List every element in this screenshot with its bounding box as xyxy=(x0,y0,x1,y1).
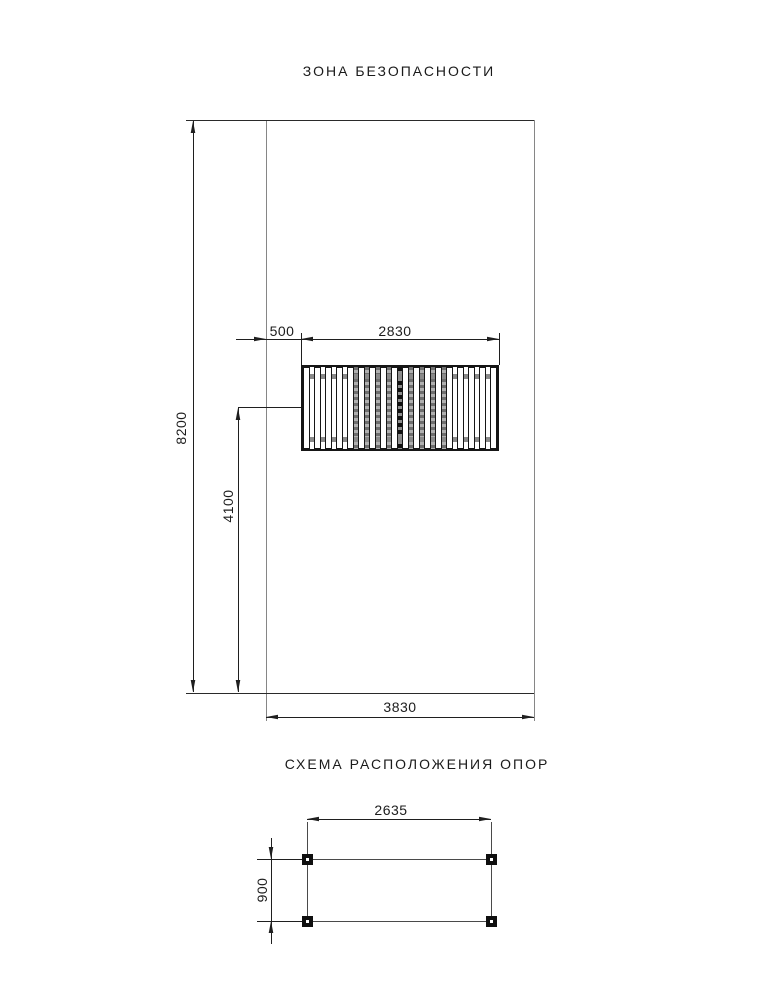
bench-slat xyxy=(413,367,420,449)
dim-label-2830: 2830 xyxy=(378,324,411,338)
arrow-right-icon xyxy=(254,337,266,342)
arrow-up-icon xyxy=(236,408,241,420)
arrow-left-icon xyxy=(266,715,278,720)
arrow-left-icon xyxy=(301,337,313,342)
dimension-8200 xyxy=(191,121,196,692)
arrow-down-icon xyxy=(191,680,196,692)
arrow-right-icon xyxy=(522,715,534,720)
dimension-4100 xyxy=(236,408,301,693)
support-post xyxy=(302,854,313,865)
bench-slat xyxy=(402,367,409,449)
bench-slat xyxy=(303,367,310,449)
supports-frame xyxy=(307,822,492,922)
bench-slat xyxy=(325,367,332,449)
bench-slats xyxy=(303,367,497,449)
arrow-up-icon xyxy=(191,121,196,133)
support-posts xyxy=(302,854,497,927)
dim-label-900: 900 xyxy=(255,878,269,903)
bench-slat xyxy=(479,367,486,449)
arrow-right-icon xyxy=(479,817,491,822)
dimension-3830 xyxy=(266,715,534,720)
bench-slat xyxy=(424,367,431,449)
drawing-linework xyxy=(0,0,772,1000)
support-post xyxy=(302,916,313,927)
bench-slat xyxy=(435,367,442,449)
safety-zone-title: ЗОНА БЕЗОПАСНОСТИ xyxy=(303,64,495,78)
bench-slat xyxy=(347,367,354,449)
bench-slat xyxy=(468,367,475,449)
drawing-canvas: ЗОНА БЕЗОПАСНОСТИ 500 2830 8200 4100 383… xyxy=(0,0,772,1000)
bench-slat xyxy=(391,367,398,449)
dim-label-2635: 2635 xyxy=(374,803,407,817)
support-post xyxy=(486,854,497,865)
arrow-down-icon xyxy=(269,847,274,859)
bench-slat xyxy=(336,367,343,449)
dim-label-3830: 3830 xyxy=(383,700,416,714)
bench-slat xyxy=(369,367,376,449)
bench-slat xyxy=(446,367,453,449)
arrow-down-icon xyxy=(236,680,241,692)
dim-label-8200: 8200 xyxy=(174,411,188,444)
bench-slat xyxy=(380,367,387,449)
support-post xyxy=(486,916,497,927)
arrow-right-icon xyxy=(487,337,499,342)
dim-label-4100: 4100 xyxy=(221,489,235,522)
bench-slat xyxy=(314,367,321,449)
dim-label-500: 500 xyxy=(270,324,295,338)
bench-slat xyxy=(457,367,464,449)
arrow-up-icon xyxy=(269,921,274,933)
supports-title: СХЕМА РАСПОЛОЖЕНИЯ ОПОР xyxy=(285,757,550,771)
bench-slat xyxy=(358,367,365,449)
arrow-left-icon xyxy=(307,817,319,822)
bench-slat xyxy=(490,367,497,449)
bench-top-view xyxy=(301,365,499,451)
